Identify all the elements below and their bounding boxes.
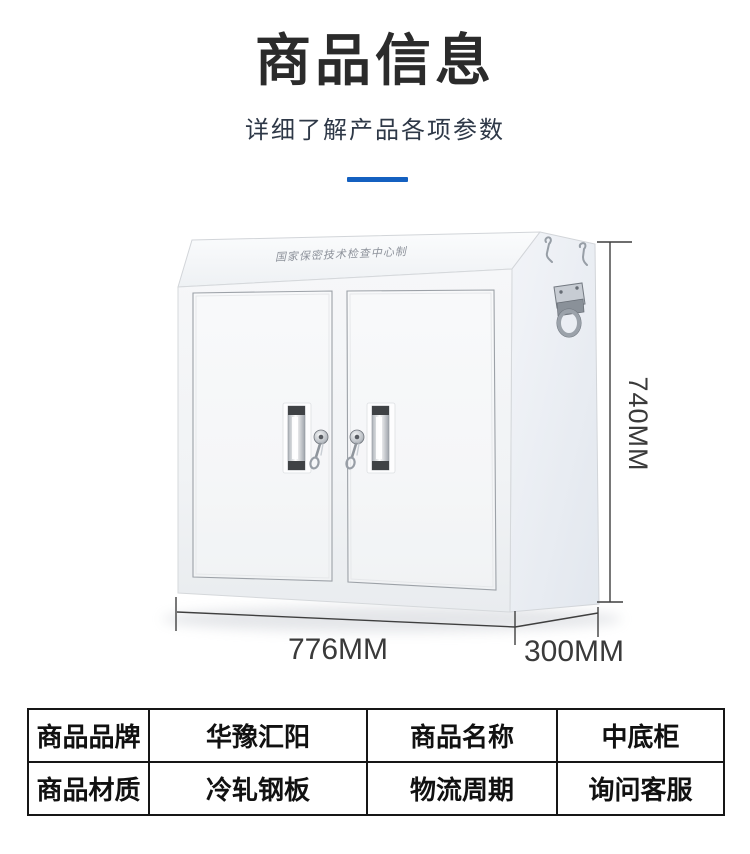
spec-table: 商品品牌 华豫汇阳 商品名称 中底柜 商品材质 冷轧钢板 物流周期 询问客服 <box>27 708 725 816</box>
right-door-lock <box>350 430 364 444</box>
dim-width-label: 776MM <box>288 633 388 666</box>
product-info-page: 商品信息 详细了解产品各项参数 <box>0 0 750 854</box>
spec-row: 商品材质 冷轧钢板 物流周期 询问客服 <box>28 762 724 815</box>
page-title: 商品信息 <box>0 30 750 92</box>
spec-cell-brand-label: 商品品牌 <box>28 709 149 762</box>
cabinet-shadow <box>162 606 622 632</box>
spec-cell-material-value: 冷轧钢板 <box>149 762 367 815</box>
product-figure: 国家保密技术检查中心制 <box>0 215 750 685</box>
spec-cell-name-value: 中底柜 <box>557 709 724 762</box>
left-door-lock <box>314 430 328 444</box>
right-door-handle <box>367 403 395 473</box>
dim-height-label: 740MM <box>623 376 653 471</box>
dim-depth-label: 300MM <box>524 635 624 668</box>
spec-cell-logistics-label: 物流周期 <box>367 762 557 815</box>
left-door-handle <box>283 403 311 473</box>
spec-row: 商品品牌 华豫汇阳 商品名称 中底柜 <box>28 709 724 762</box>
spec-cell-brand-value: 华豫汇阳 <box>149 709 367 762</box>
spec-cell-material-label: 商品材质 <box>28 762 149 815</box>
spec-cell-logistics-value: 询问客服 <box>557 762 724 815</box>
page-subtitle: 详细了解产品各项参数 <box>0 116 750 146</box>
spec-cell-name-label: 商品名称 <box>367 709 557 762</box>
accent-divider <box>347 177 408 182</box>
product-image: 国家保密技术检查中心制 <box>0 215 750 685</box>
